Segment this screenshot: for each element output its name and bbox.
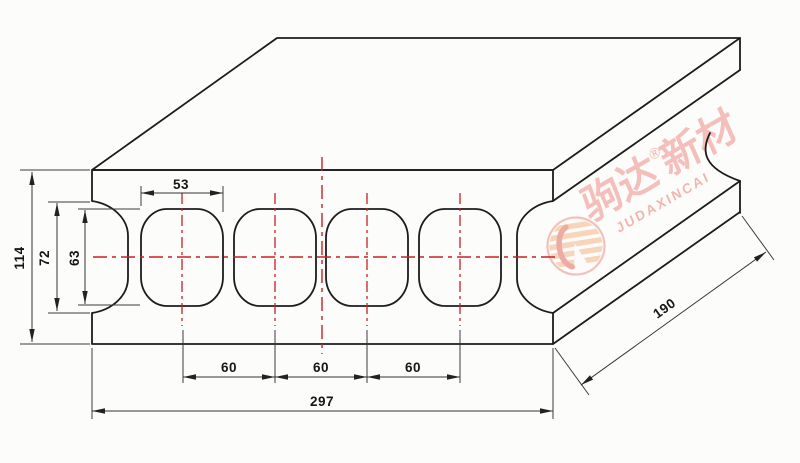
watermark: 驹达®新材 JUDAXINCAI (543, 102, 750, 279)
dimension-texts: 114 72 63 53 60 60 60 297 190 (12, 177, 679, 409)
dim-hole-height: 63 (67, 250, 82, 266)
dim-hole-width: 53 (173, 177, 189, 192)
dimline-190 (581, 252, 766, 385)
centerlines (93, 157, 557, 354)
dim-spacing-2: 60 (313, 360, 329, 375)
dim-panel-thickness: 114 (12, 246, 27, 269)
dim-groove-height: 72 (37, 250, 52, 266)
hollow-core-panel-drawing: 驹达®新材 JUDAXINCAI (0, 0, 800, 463)
drawing-page: 驹达®新材 JUDAXINCAI (0, 0, 800, 463)
dim-spacing-3: 60 (405, 360, 421, 375)
dim-panel-width: 297 (310, 394, 334, 409)
dim-spacing-1: 60 (221, 360, 237, 375)
